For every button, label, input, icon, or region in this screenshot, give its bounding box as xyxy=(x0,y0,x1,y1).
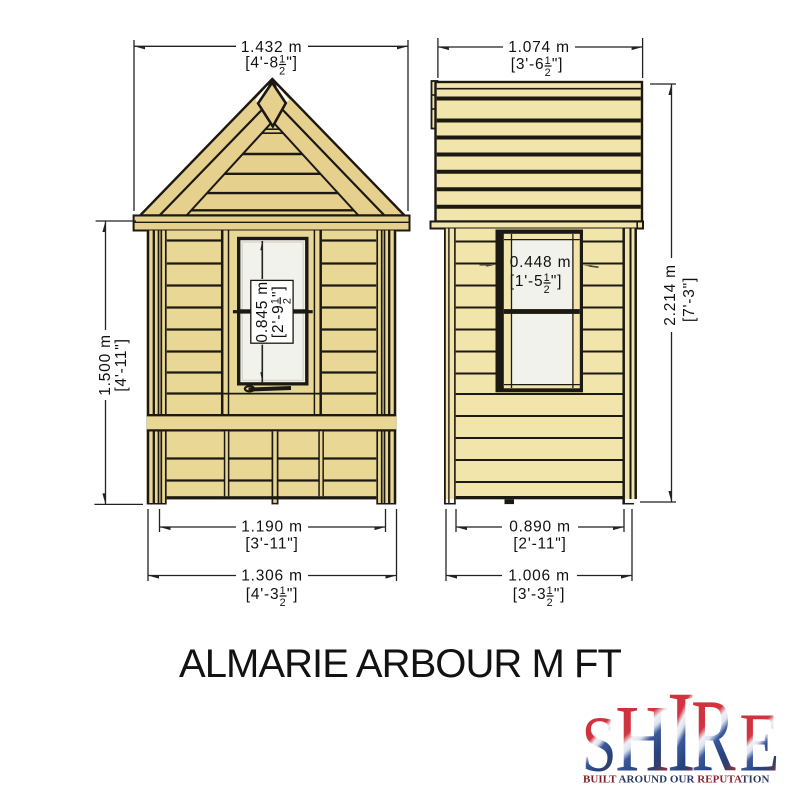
svg-text:[1'-5: [1'-5 xyxy=(510,273,544,290)
svg-text:2.214 m: 2.214 m xyxy=(662,264,679,326)
svg-text:[4'-8: [4'-8 xyxy=(245,55,279,72)
svg-text:ALMARIE ARBOUR M FT: ALMARIE ARBOUR M FT xyxy=(179,642,622,686)
svg-text:[4'-3: [4'-3 xyxy=(246,586,280,603)
svg-text:[3'-11"]: [3'-11"] xyxy=(245,536,298,553)
svg-text:2: 2 xyxy=(280,597,287,609)
svg-text:[7'-3"]: [7'-3"] xyxy=(681,277,698,322)
svg-text:[3'-6: [3'-6 xyxy=(511,56,545,73)
svg-text:[3'-3: [3'-3 xyxy=(513,586,547,603)
svg-text:2: 2 xyxy=(281,297,293,304)
svg-text:1.432 m: 1.432 m xyxy=(241,39,303,56)
svg-text:1.500 m: 1.500 m xyxy=(97,334,114,396)
svg-text:1: 1 xyxy=(269,297,281,304)
svg-text:"]: "] xyxy=(270,286,287,297)
svg-text:1: 1 xyxy=(544,272,551,284)
svg-text:"]: "] xyxy=(286,55,297,72)
svg-text:1.190 m: 1.190 m xyxy=(241,519,303,536)
svg-text:1.006 m: 1.006 m xyxy=(508,568,570,585)
svg-text:"]: "] xyxy=(554,586,565,603)
svg-text:2: 2 xyxy=(279,66,286,78)
svg-text:2: 2 xyxy=(547,597,554,609)
svg-text:[2'-11"]: [2'-11"] xyxy=(513,536,566,553)
svg-text:1.306 m: 1.306 m xyxy=(241,568,303,585)
svg-text:0.890 m: 0.890 m xyxy=(509,519,571,536)
svg-text:2: 2 xyxy=(544,284,551,296)
svg-text:[4'-11"]: [4'-11"] xyxy=(113,338,130,391)
svg-text:2: 2 xyxy=(545,67,552,79)
svg-text:1.074 m: 1.074 m xyxy=(508,39,570,56)
svg-text:"]: "] xyxy=(287,586,298,603)
svg-text:1: 1 xyxy=(280,585,287,597)
svg-text:0.448 m: 0.448 m xyxy=(510,254,572,271)
svg-text:0.845 m: 0.845 m xyxy=(254,281,271,343)
svg-text:"]: "] xyxy=(552,56,563,73)
svg-text:"]: "] xyxy=(551,273,562,290)
svg-text:1: 1 xyxy=(545,55,552,67)
svg-text:1: 1 xyxy=(279,54,286,66)
svg-text:1: 1 xyxy=(547,585,554,597)
svg-text:[2'-9: [2'-9 xyxy=(270,304,287,338)
svg-text:BUILT AROUND OUR REPUTATION: BUILT AROUND OUR REPUTATION xyxy=(583,774,770,786)
